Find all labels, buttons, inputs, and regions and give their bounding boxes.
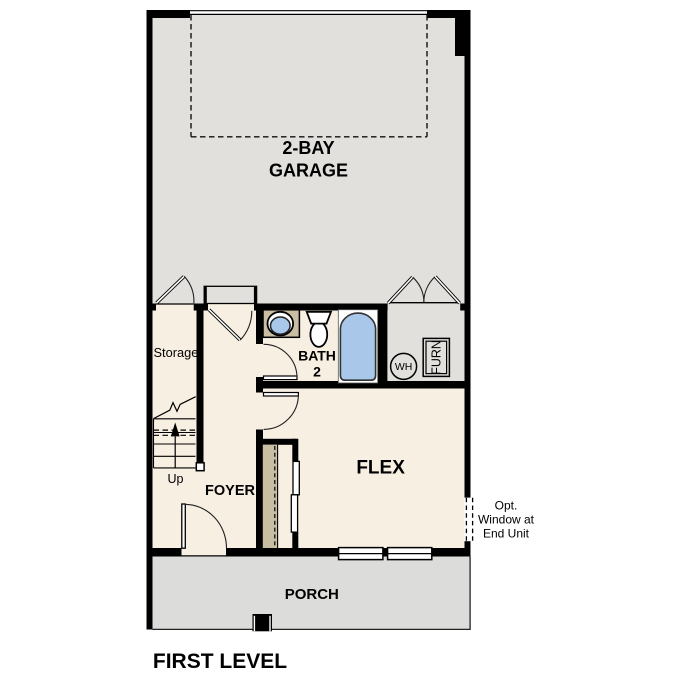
svg-text:WH: WH (395, 361, 413, 373)
svg-text:End Unit: End Unit (483, 527, 530, 541)
svg-text:FURN: FURN (430, 340, 444, 375)
svg-text:FIRST LEVEL: FIRST LEVEL (153, 650, 287, 673)
svg-text:FLEX: FLEX (356, 457, 405, 478)
svg-text:Up: Up (168, 472, 184, 486)
svg-text:Window at: Window at (478, 513, 535, 527)
svg-text:BATH: BATH (298, 348, 336, 364)
svg-text:PORCH: PORCH (285, 586, 339, 603)
svg-text:2: 2 (313, 364, 321, 380)
svg-text:Storage: Storage (154, 345, 199, 360)
svg-text:FOYER: FOYER (205, 483, 255, 499)
svg-text:2-BAY: 2-BAY (282, 138, 334, 158)
svg-text:Opt.: Opt. (495, 499, 518, 513)
svg-text:GARAGE: GARAGE (269, 161, 348, 181)
